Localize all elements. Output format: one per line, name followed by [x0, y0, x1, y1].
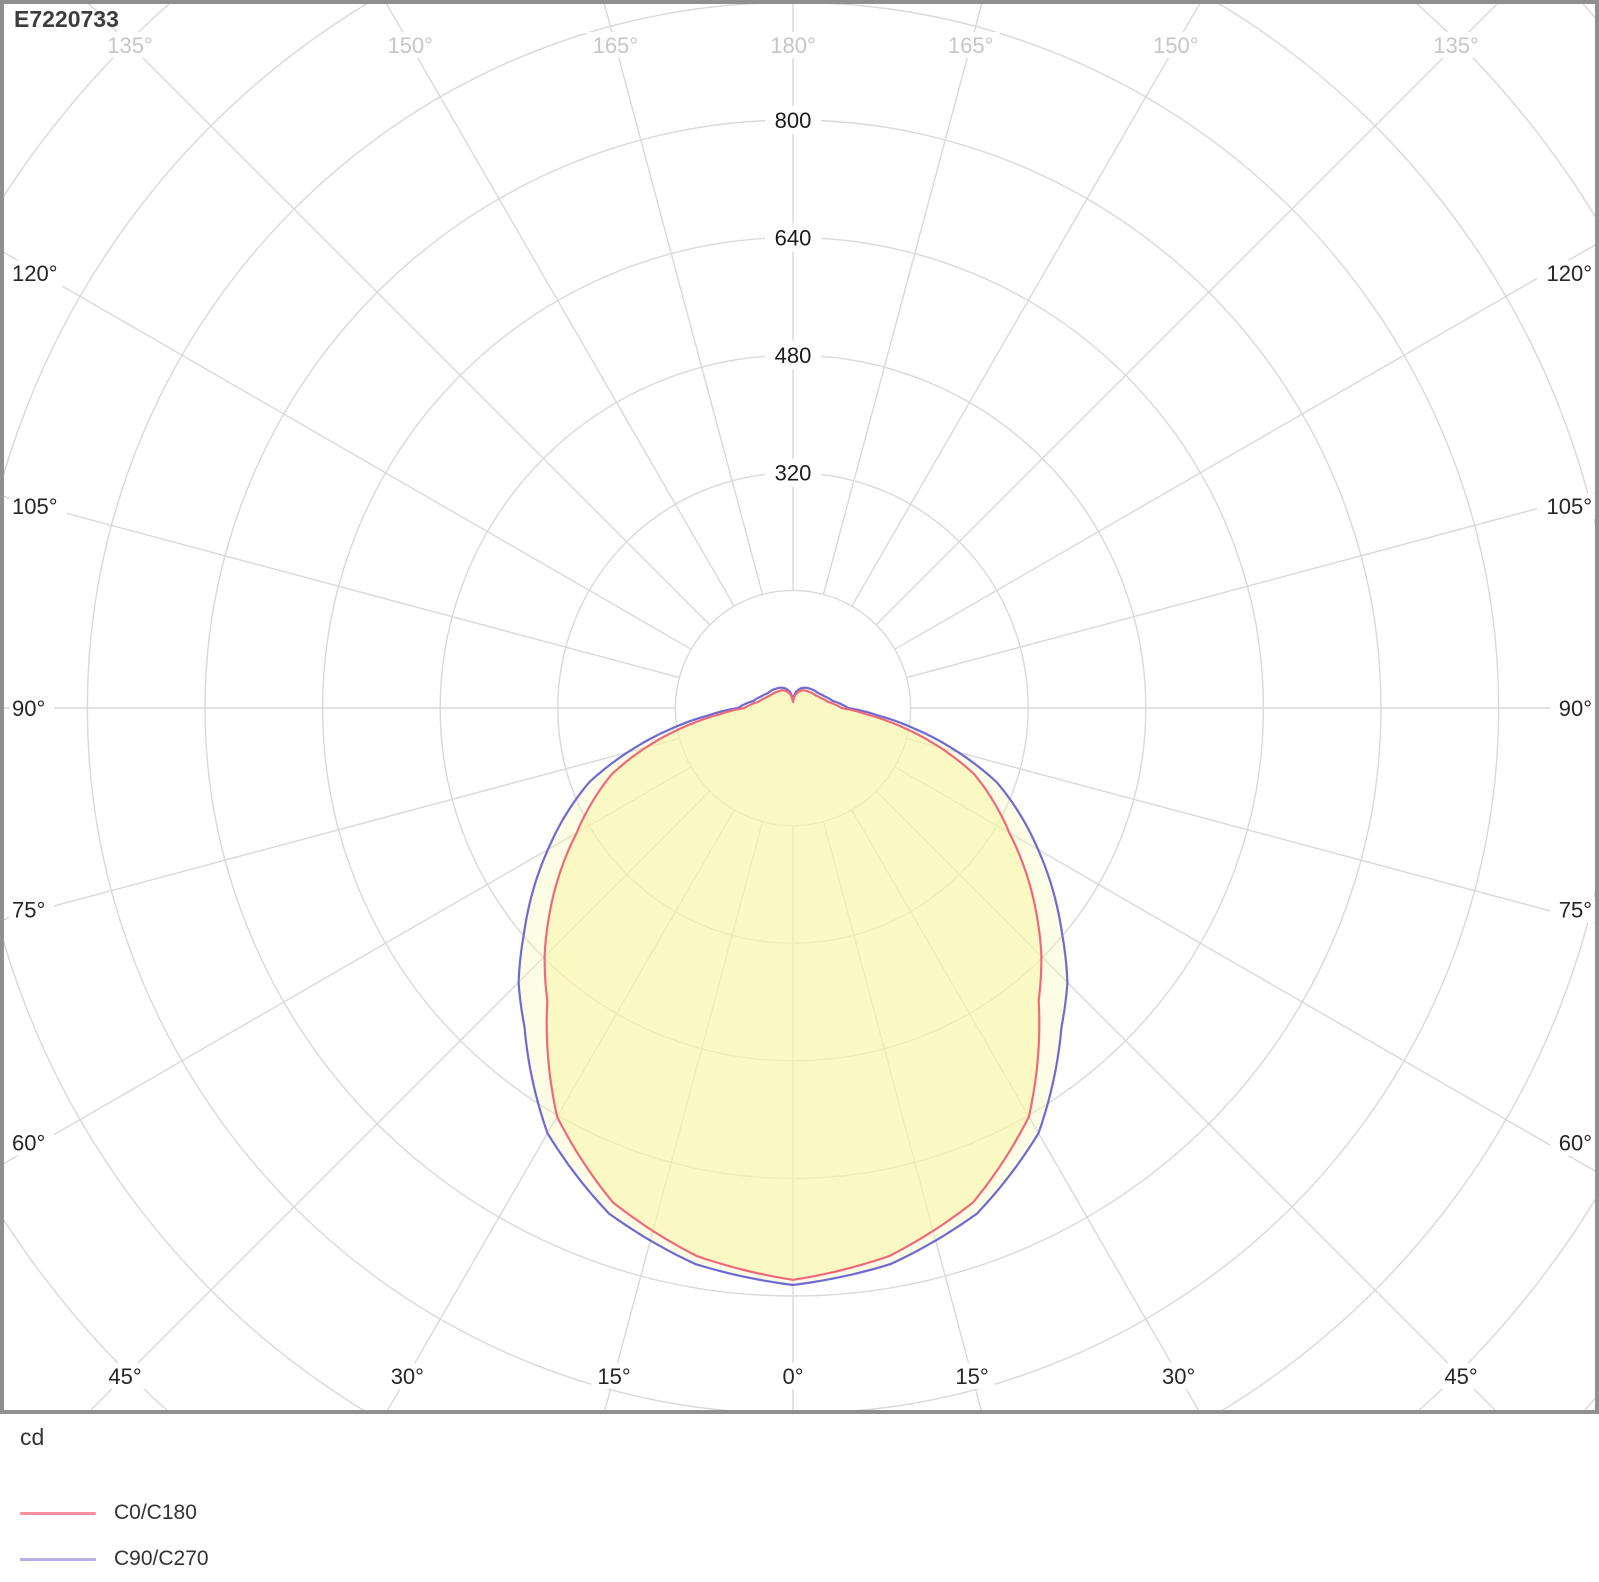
legend-entry-c0-c180: C0/C180 [20, 1498, 209, 1528]
angle-label-150-right: 150° [1153, 33, 1199, 58]
radial-tick-label-800: 800 [775, 108, 812, 133]
radial-tick-label-640: 640 [775, 226, 812, 251]
angle-label-165-left: 165° [593, 33, 639, 58]
angle-label-105-left: 105° [12, 494, 58, 519]
plot-id-label: E7220733 [14, 6, 119, 33]
angle-label-90-right: 90° [1559, 696, 1592, 721]
angle-label-120-left: 120° [12, 261, 58, 286]
angle-label-0-right: 0° [782, 1364, 803, 1389]
angle-label-30-right: 30° [1162, 1364, 1195, 1389]
angle-label-75-left: 75° [12, 898, 45, 923]
legend-label-c90-c270: C90/C270 [114, 1547, 209, 1571]
legend-label-c0-c180: C0/C180 [114, 1501, 197, 1525]
angle-label-150-left: 150° [387, 33, 433, 58]
angle-label-165-right: 165° [948, 33, 994, 58]
angle-label-135-right: 135° [1433, 33, 1479, 58]
photometric-diagram: 3204806408000°15°15°30°30°45°45°60°60°75… [0, 0, 1599, 1582]
angle-label-45-left: 45° [108, 1364, 141, 1389]
angle-label-15-left: 15° [597, 1364, 630, 1389]
angle-label-180-left: 180° [770, 33, 816, 58]
angle-label-60-right: 60° [1559, 1131, 1592, 1156]
polar-plot-area: 3204806408000°15°15°30°30°45°45°60°60°75… [0, 0, 1599, 1414]
intensity-curves [519, 688, 1068, 1285]
polar-plot-svg: 3204806408000°15°15°30°30°45°45°60°60°75… [0, 0, 1599, 1414]
legend-entry-c90-c270: C90/C270 [20, 1544, 209, 1574]
angle-label-30-left: 30° [391, 1364, 424, 1389]
radial-tick-label-320: 320 [775, 461, 812, 486]
angle-label-90-left: 90° [12, 696, 45, 721]
unit-label: cd [20, 1424, 44, 1451]
legend: C0/C180 C90/C270 [20, 1498, 209, 1582]
angle-label-60-left: 60° [12, 1131, 45, 1156]
angle-label-15-right: 15° [955, 1364, 988, 1389]
angle-label-120-right: 120° [1546, 261, 1592, 286]
angle-label-45-right: 45° [1444, 1364, 1477, 1389]
angle-label-75-right: 75° [1559, 898, 1592, 923]
radial-tick-label-480: 480 [775, 343, 812, 368]
angle-label-105-right: 105° [1546, 494, 1592, 519]
legend-line-c90-c270 [20, 1558, 96, 1561]
curve-c0-c180 [545, 690, 1042, 1280]
angle-label-135-left: 135° [107, 33, 153, 58]
legend-line-c0-c180 [20, 1512, 96, 1515]
